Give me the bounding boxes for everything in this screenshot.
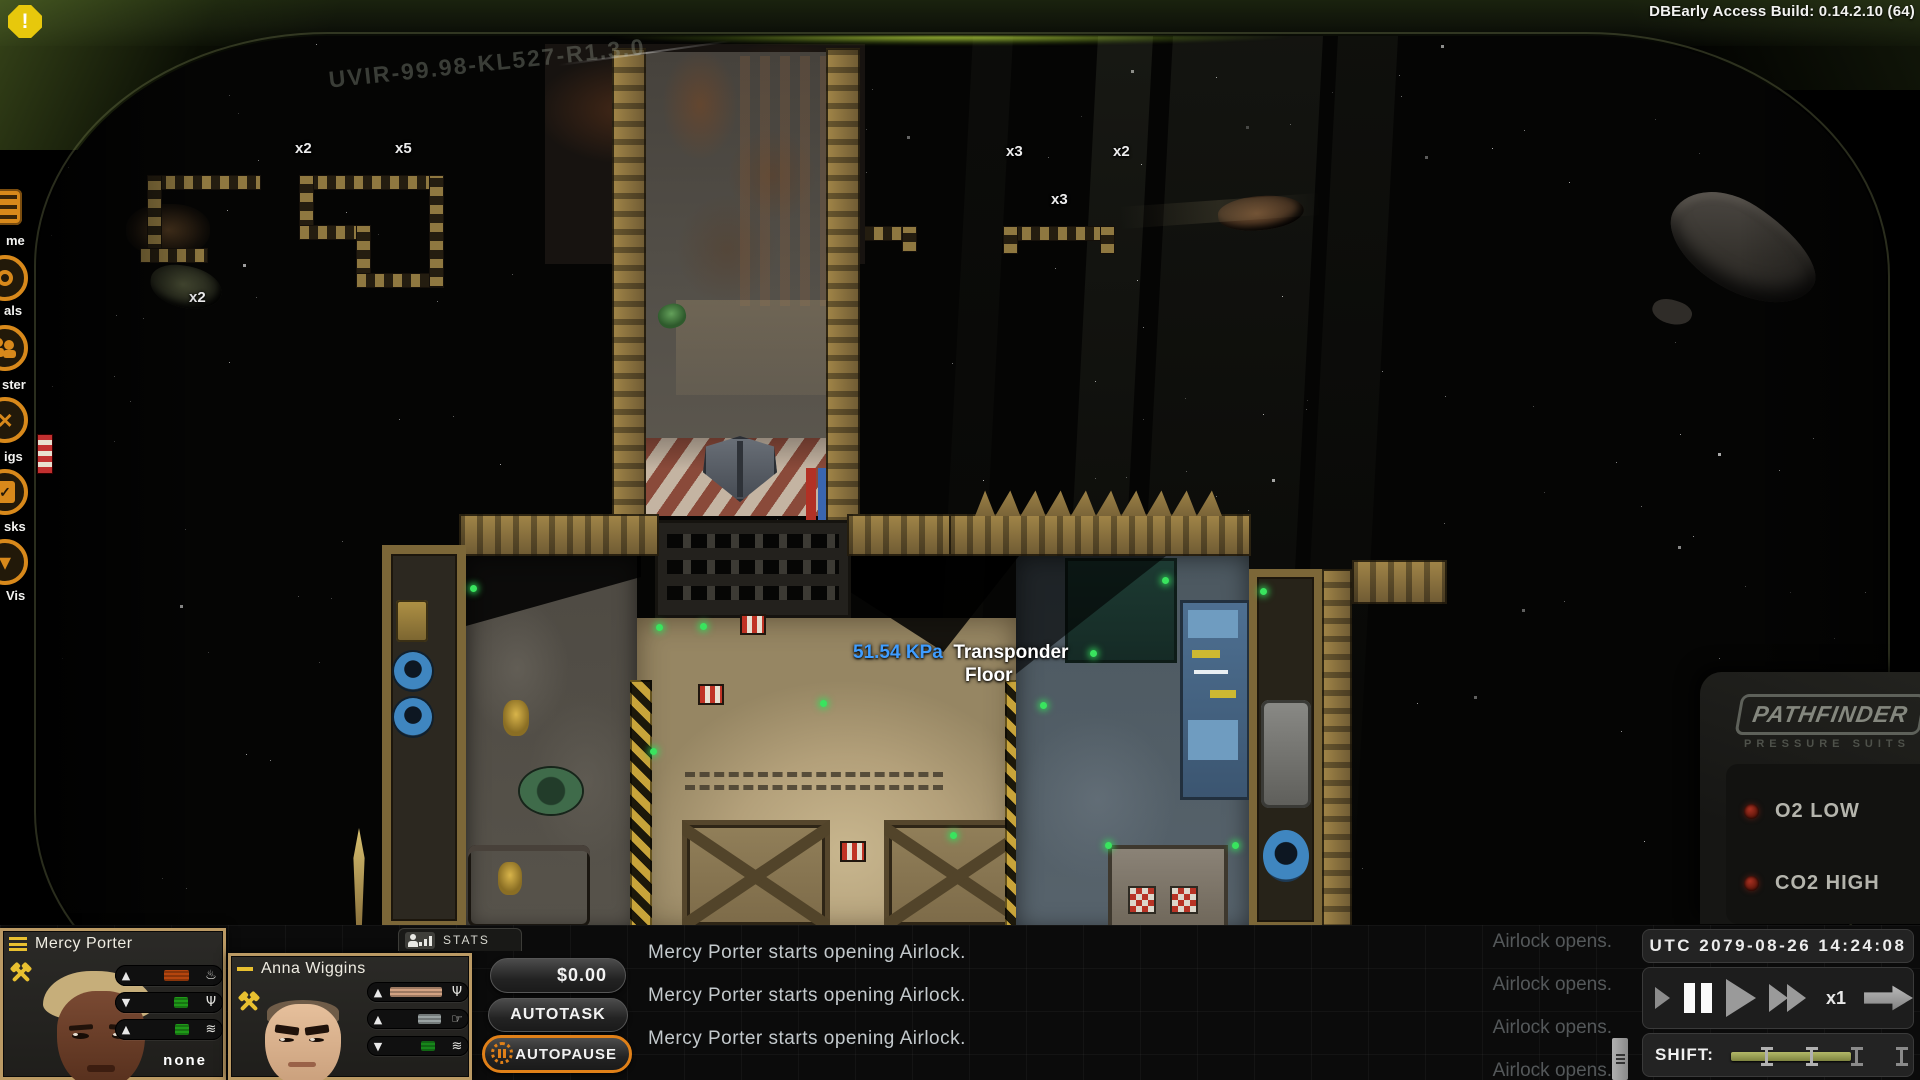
round-fixture xyxy=(394,698,432,736)
shift-tick xyxy=(1761,1047,1773,1066)
food-icon: Ψ xyxy=(445,985,469,1000)
window-glare xyxy=(560,36,1340,48)
stack-count-label: x3 xyxy=(1051,191,1068,208)
stack-count-label: x5 xyxy=(395,140,412,157)
suit-indicator-panel: O2 LOW CO2 HIGH xyxy=(1726,764,1920,924)
hazard-checker xyxy=(1130,888,1154,912)
stats-button[interactable]: STATS xyxy=(398,928,522,951)
hull-wall xyxy=(949,514,1251,556)
play-slow-button[interactable] xyxy=(1655,987,1670,1009)
game-screen: UVIR-99.98-KL527-R1.3.0 x2 x5 x3 x2 x3 x… xyxy=(0,0,1920,1080)
crew-portrait[interactable] xyxy=(243,1000,363,1080)
status-led xyxy=(1090,650,1097,657)
waves-icon: ≋ xyxy=(445,1039,469,1054)
need-bar-touch: ▲ ☞ xyxy=(367,1009,469,1029)
derelict-wall xyxy=(300,176,442,189)
corridor-floor-patch xyxy=(676,300,826,395)
time-controls: x1 xyxy=(1642,967,1914,1029)
log-line: Mercy Porter starts opening Airlock. xyxy=(648,985,966,1007)
autotask-button[interactable]: AUTOTASK xyxy=(488,998,628,1032)
trend-up-icon: ▲ xyxy=(115,1023,137,1036)
sofa xyxy=(468,845,590,927)
sidebar-item-tasks-label[interactable]: sks xyxy=(4,519,26,534)
corridor-wall xyxy=(826,48,860,523)
bar-fill xyxy=(175,1024,189,1035)
indicator-row: O2 LOW xyxy=(1744,800,1860,823)
derelict-wall xyxy=(430,176,443,286)
suit-brand-logo: PATHFINDER xyxy=(1734,694,1920,735)
fast-forward-button[interactable] xyxy=(1770,984,1806,1012)
stats-icon xyxy=(405,932,435,949)
sidebar-item-vis-label[interactable]: Vis xyxy=(6,588,25,603)
game-menu-icon[interactable] xyxy=(0,189,22,225)
need-bar-food: ▲ Ψ xyxy=(367,982,469,1002)
co2-warning-label: CO2 HIGH xyxy=(1775,872,1880,895)
stack-count-label: x3 xyxy=(1006,143,1023,160)
log-scrollbar-thumb[interactable] xyxy=(1612,1038,1628,1080)
shift-slider[interactable] xyxy=(1731,1052,1851,1061)
trend-up-icon: ▲ xyxy=(367,1013,389,1026)
temperature-icon: ♨ xyxy=(199,968,223,983)
status-led xyxy=(1162,577,1169,584)
shift-slider-panel: SHIFT: xyxy=(1642,1033,1914,1077)
food-icon: Ψ xyxy=(199,995,223,1010)
bar-fill xyxy=(164,970,189,981)
shift-label: SHIFT: xyxy=(1643,1045,1714,1065)
shift-tick xyxy=(1851,1047,1863,1066)
tooltip-floor: Floor xyxy=(965,664,1068,687)
lamp xyxy=(352,828,366,928)
collapse-dash-icon[interactable] xyxy=(237,967,253,971)
autopause-button[interactable]: AUTOPAUSE xyxy=(482,1035,632,1073)
need-bar-food: ▼ Ψ xyxy=(115,992,223,1013)
hazard-marker xyxy=(742,616,764,633)
status-led xyxy=(700,623,707,630)
round-fixture xyxy=(394,652,432,690)
derelict-wall xyxy=(148,176,260,189)
log-line: Airlock opens. xyxy=(1212,1060,1612,1080)
trend-down-icon: ▼ xyxy=(115,996,137,1009)
stack-count-label: x2 xyxy=(1113,143,1130,160)
suit-brand-subtitle: PRESSURE SUITS xyxy=(1744,738,1910,750)
shift-tick xyxy=(1896,1047,1908,1066)
shift-tick xyxy=(1806,1047,1818,1066)
o2-warning-led xyxy=(1744,804,1759,819)
log-line: Airlock opens. xyxy=(1212,1017,1612,1039)
autopause-icon xyxy=(491,1042,513,1064)
sidebar-item-goals-label[interactable]: als xyxy=(4,303,22,318)
utc-clock: UTC 2079-08-26 14:24:08 xyxy=(1642,929,1914,963)
waves-icon: ≋ xyxy=(199,1022,223,1037)
sidebar-item-goals[interactable] xyxy=(0,255,28,301)
stack-count-label: x2 xyxy=(189,289,206,306)
derelict-wall xyxy=(1004,227,1114,240)
sidebar-item-roster[interactable] xyxy=(0,325,28,371)
status-led xyxy=(650,748,657,755)
derelict-wall xyxy=(1101,227,1114,253)
roster-icon xyxy=(0,338,18,358)
derelict-wall xyxy=(1004,227,1017,253)
need-bar-temperature: ▲ ♨ xyxy=(115,965,223,986)
bar-fill xyxy=(390,987,442,998)
asteroid-fragment xyxy=(1649,294,1694,329)
tooltip-pressure: 51.54 KPa xyxy=(853,642,943,663)
hull-wall xyxy=(459,514,659,556)
sidebar-item-tasks[interactable]: ✓ xyxy=(0,469,28,515)
eva-boots xyxy=(503,700,529,736)
hazard-pillar xyxy=(630,680,652,930)
face xyxy=(265,1004,341,1080)
hazard-checker xyxy=(1172,888,1196,912)
tasks-icon: ✓ xyxy=(0,481,15,503)
cockpit-window: UVIR-99.98-KL527-R1.3.0 x2 x5 x3 x2 x3 x… xyxy=(38,36,1886,1022)
derelict-wall xyxy=(141,249,207,262)
cargo-module xyxy=(682,820,830,930)
sidebar-item-ships[interactable]: × xyxy=(0,397,28,443)
log-line: Mercy Porter starts opening Airlock. xyxy=(648,942,966,964)
hull-wall xyxy=(1322,569,1352,930)
bar-fill xyxy=(418,1014,441,1025)
cargo-crate xyxy=(1108,845,1228,930)
build-version-label: DBEarly Access Build: 0.14.2.10 (64) xyxy=(1649,3,1915,20)
crew-name[interactable]: Mercy Porter xyxy=(35,935,133,953)
status-led xyxy=(1040,702,1047,709)
crew-card-mercy-porter[interactable]: Mercy Porter ▲ ♨ ▼ xyxy=(0,928,226,1080)
debris xyxy=(147,261,224,313)
need-bar-water: ▲ ≋ xyxy=(115,1019,223,1040)
vent-room xyxy=(655,520,851,618)
trend-up-icon: ▲ xyxy=(115,969,137,982)
status-led xyxy=(656,624,663,631)
money-button[interactable]: $0.00 xyxy=(490,958,626,993)
corridor-wall xyxy=(612,48,646,523)
status-led xyxy=(1260,588,1267,595)
log-line: Mercy Porter starts opening Airlock. xyxy=(648,1028,966,1050)
crew-card-anna-wiggins[interactable]: Anna Wiggins ▲ Ψ ▲ xyxy=(228,953,472,1080)
status-led xyxy=(950,832,957,839)
play-button[interactable] xyxy=(1726,979,1756,1017)
hazard-marker xyxy=(700,686,722,703)
bed xyxy=(1261,700,1311,808)
table xyxy=(520,768,582,814)
stack-count-label: x2 xyxy=(295,140,312,157)
machinery xyxy=(1180,600,1250,800)
sidebar-item-vis[interactable]: ▾ xyxy=(0,539,28,585)
toilet xyxy=(1263,830,1309,882)
log-line: Airlock opens. xyxy=(1212,931,1612,953)
need-bar-water: ▼ ≋ xyxy=(367,1036,469,1056)
hull-wall xyxy=(847,514,951,556)
o2-warning-label: O2 LOW xyxy=(1775,800,1860,823)
hazard-marker xyxy=(842,843,864,860)
trend-down-icon: ▼ xyxy=(367,1040,389,1053)
machine xyxy=(396,600,428,642)
corridor-rust xyxy=(740,56,826,306)
crew-menu-icon[interactable] xyxy=(9,937,27,951)
tooltip-object-name: Transponder xyxy=(948,642,1068,663)
bar-fill xyxy=(421,1041,434,1052)
hover-tooltip: 51.54 KPa Transponder Floor xyxy=(853,641,1068,687)
stats-label: STATS xyxy=(443,933,490,947)
log-line: Airlock opens. xyxy=(1212,974,1612,996)
status-led xyxy=(470,585,477,592)
bottom-hud-bar: Mercy Porter ▲ ♨ ▼ xyxy=(0,925,1920,1080)
status-led xyxy=(820,700,827,707)
hand-icon: ☞ xyxy=(445,1012,469,1027)
indicator-row: CO2 HIGH xyxy=(1744,872,1880,895)
floor-markings xyxy=(685,772,943,790)
crew-name[interactable]: Anna Wiggins xyxy=(261,960,366,978)
chevron-down-icon: ▾ xyxy=(0,548,11,577)
co2-warning-led xyxy=(1744,876,1759,891)
ships-icon: × xyxy=(0,405,13,436)
status-led xyxy=(1105,842,1112,849)
sidebar-item-game[interactable]: me xyxy=(6,233,25,248)
pressure-suit-console: PATHFINDER PRESSURE SUITS O2 LOW CO2 HIG… xyxy=(1700,672,1920,924)
sidebar-item-roster-label[interactable]: ster xyxy=(2,377,26,392)
derelict-wall xyxy=(903,227,916,251)
sidebar-item-ships-label[interactable]: igs xyxy=(4,449,23,464)
goals-flag-icon xyxy=(38,435,52,473)
speed-label: x1 xyxy=(1826,988,1846,1009)
status-led xyxy=(1232,842,1239,849)
current-task-label: none xyxy=(163,1052,207,1069)
hull-wall xyxy=(1352,560,1447,604)
skip-arrow-button[interactable] xyxy=(1864,984,1913,1012)
bar-fill xyxy=(174,997,188,1008)
trend-up-icon: ▲ xyxy=(367,986,389,999)
game-scene: UVIR-99.98-KL527-R1.3.0 x2 x5 x3 x2 x3 x… xyxy=(38,36,1886,1022)
pause-button[interactable] xyxy=(1684,983,1712,1013)
goals-icon xyxy=(0,270,13,286)
